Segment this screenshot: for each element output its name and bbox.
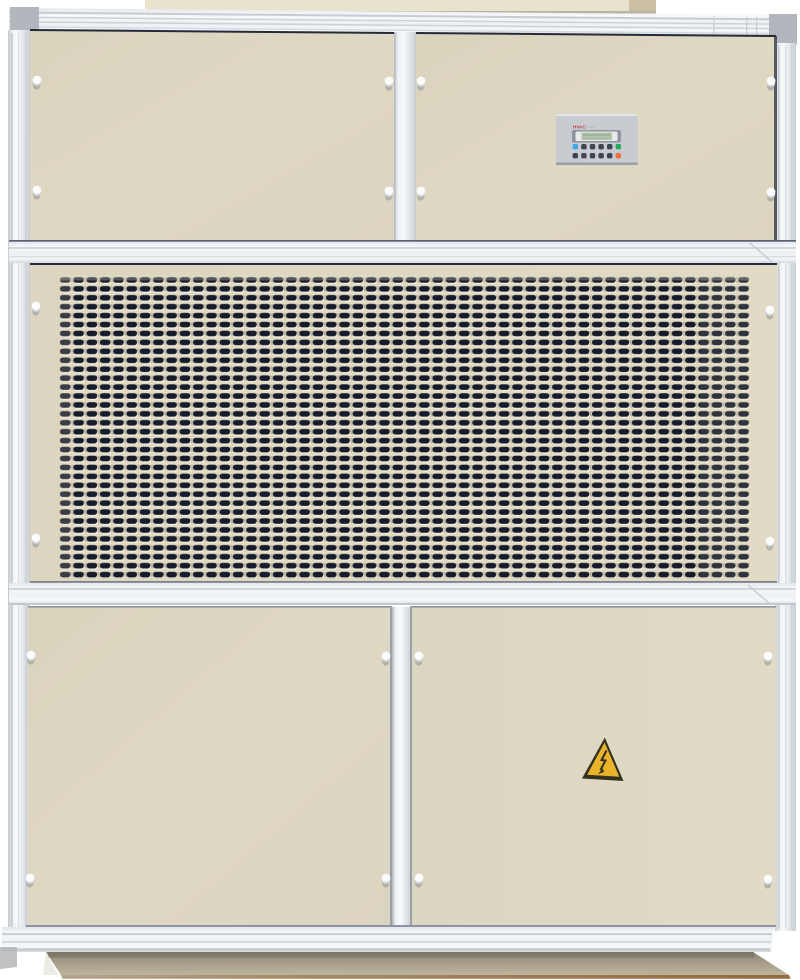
svg-text:HVAC: HVAC xyxy=(573,125,586,130)
svg-text:control: control xyxy=(587,125,595,129)
